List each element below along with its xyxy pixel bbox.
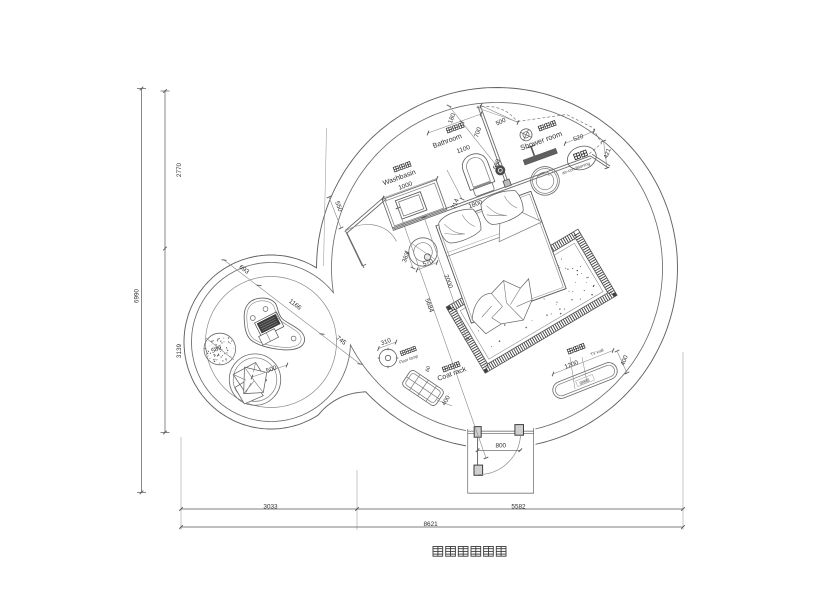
svg-text:6990: 6990 xyxy=(134,288,141,303)
svg-text:800: 800 xyxy=(495,443,506,450)
svg-text:5582: 5582 xyxy=(511,503,526,510)
svg-text:2770: 2770 xyxy=(176,162,183,177)
svg-text:8621: 8621 xyxy=(423,521,438,528)
svg-text:3033: 3033 xyxy=(263,503,278,510)
svg-text:3139: 3139 xyxy=(176,343,183,358)
